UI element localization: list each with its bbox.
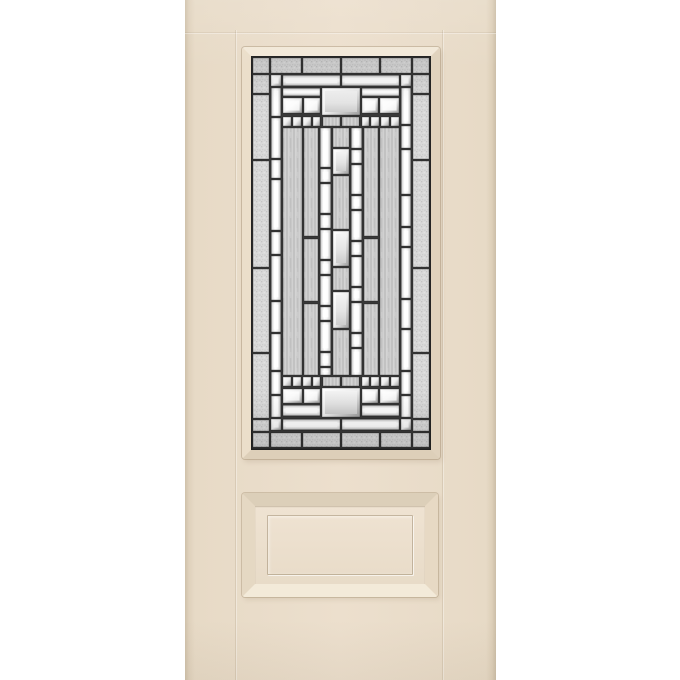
product-background bbox=[0, 0, 680, 680]
bottom-raised-panel bbox=[242, 493, 438, 597]
glass-caming-grid bbox=[251, 56, 431, 450]
door-stile-seam-left bbox=[235, 30, 236, 680]
entry-door bbox=[185, 0, 496, 680]
door-top-rail-seam bbox=[185, 32, 496, 33]
decorative-glass bbox=[251, 56, 431, 450]
panel-inner-scribe bbox=[267, 515, 413, 575]
door-stile-seam-right bbox=[442, 30, 443, 680]
